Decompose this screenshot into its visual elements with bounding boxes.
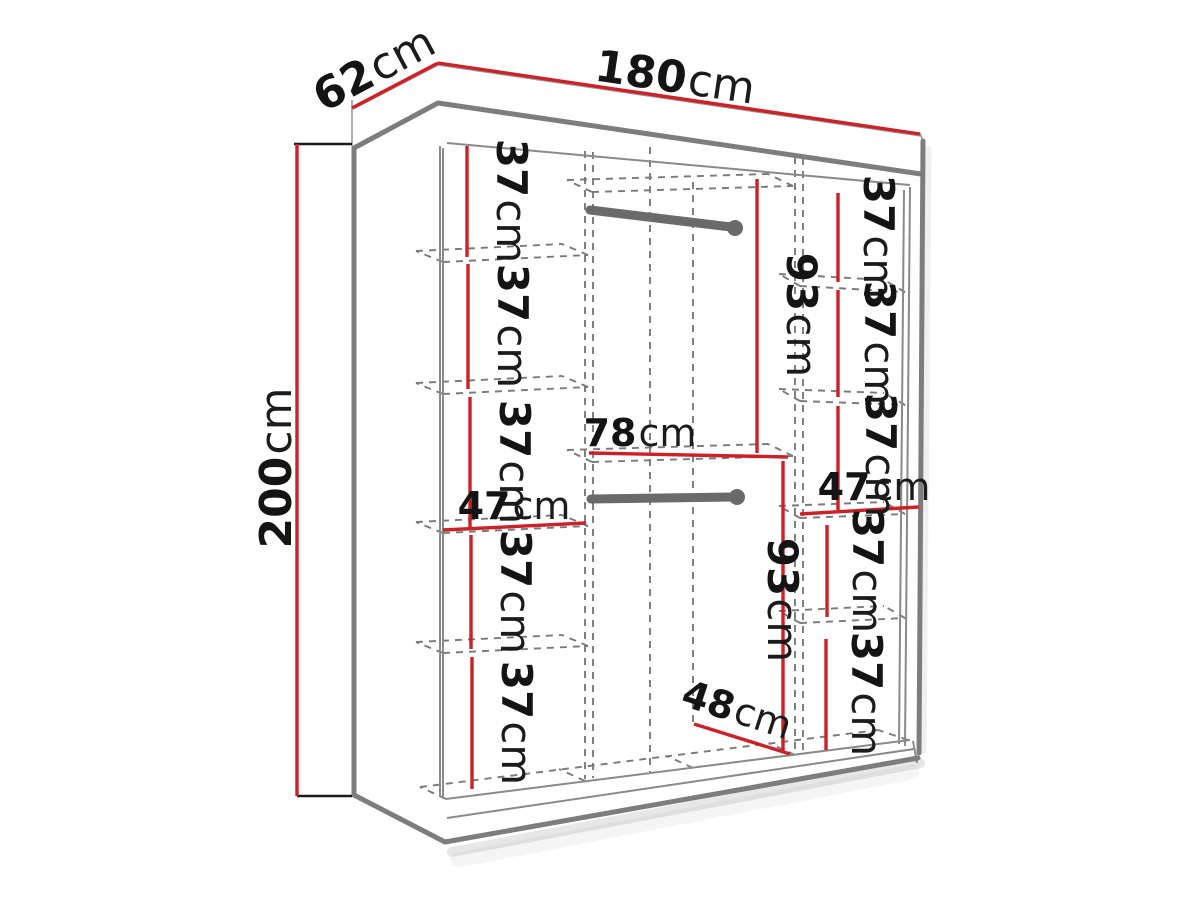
lower-hanging-rail [591,497,733,499]
right-37-label-4: 37cm [843,509,892,633]
bottom-left-slope-edge [354,795,445,842]
dimension-extension-ticks [294,144,352,796]
upper-rail-end-cap [727,220,743,236]
height-label: 200cm [251,388,302,549]
left-37-label-4: 37cm [491,530,540,654]
left-37-label-2: 37cm [488,264,537,388]
width-label: 180cm [592,41,759,115]
lower-93-label: 93cm [758,538,807,662]
left-37-label-5: 37cm [492,661,541,785]
middle-top-shelf [567,174,793,192]
left-37-label-1: 37cm [487,139,536,263]
right-47-label: 47cm [818,465,931,509]
right-37-label-5: 37cm [842,632,891,756]
top-left-slope-edge [354,103,438,148]
diagram-svg: 62cm 180cm 200cm 37cm 37cm 37cm 37cm 37c… [0,0,1200,900]
lower-rail-end-cap [729,489,745,505]
hanging-rails [590,210,745,505]
right-37-label-2: 37cm [855,281,904,405]
left-47-label: 47cm [458,484,571,528]
depth-label: 62cm [305,16,444,122]
78-label: 78cm [584,411,697,455]
upper-hanging-rail [590,210,731,227]
wardrobe-dimension-diagram: 62cm 180cm 200cm 37cm 37cm 37cm 37cm 37c… [0,0,1200,900]
upper-93-label: 93cm [777,253,826,377]
